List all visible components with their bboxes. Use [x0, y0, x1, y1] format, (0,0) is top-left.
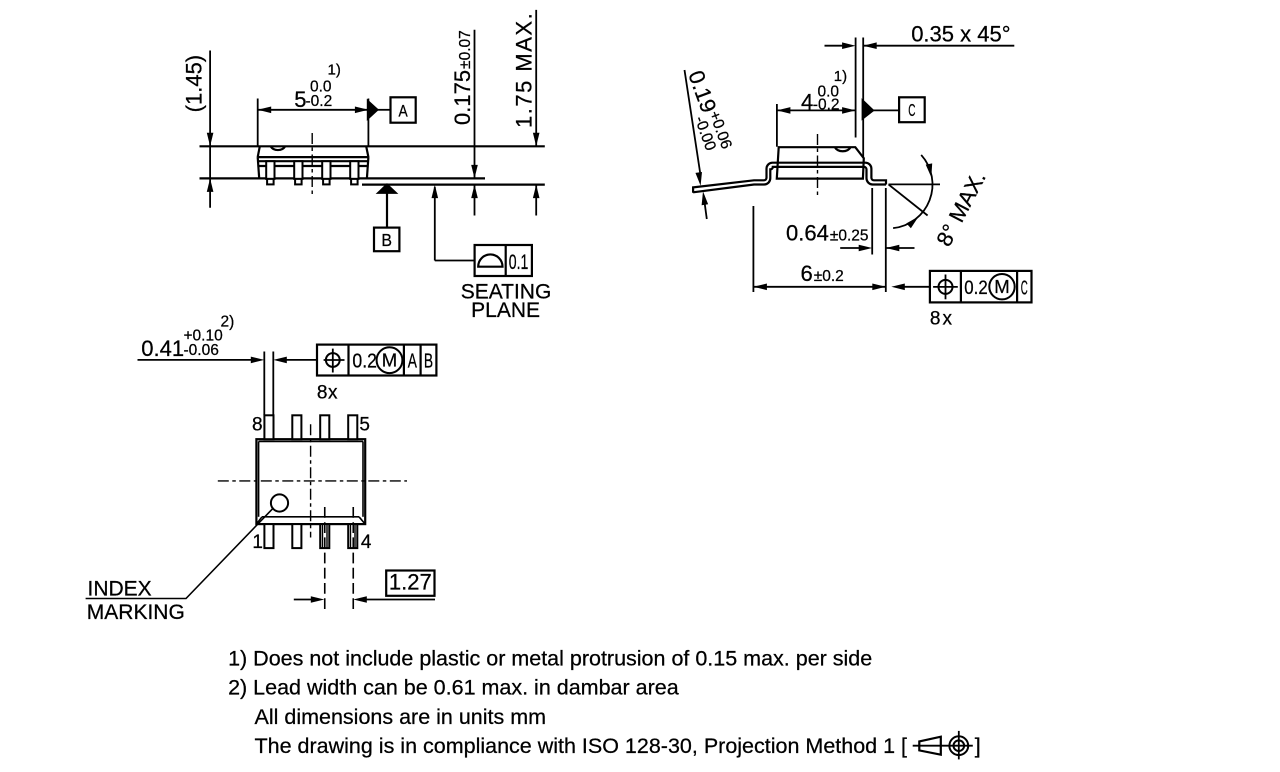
svg-text:1: 1	[252, 532, 263, 553]
svg-text:0.41: 0.41	[141, 336, 184, 361]
svg-text:The drawing is in compliance w: The drawing is in compliance with ISO 12…	[255, 734, 908, 758]
svg-text:MARKING: MARKING	[87, 601, 185, 624]
svg-text:M: M	[382, 350, 397, 371]
svg-text:(1.45): (1.45)	[181, 55, 206, 112]
svg-text:M: M	[994, 276, 1009, 297]
svg-text:4: 4	[801, 90, 813, 115]
svg-text:0.2: 0.2	[352, 350, 377, 372]
svg-text:All dimensions are in units mm: All dimensions are in units mm	[255, 705, 547, 729]
svg-text:0.2: 0.2	[964, 277, 987, 299]
svg-text:A: A	[408, 349, 417, 372]
svg-text:0.35 x 45°: 0.35 x 45°	[911, 21, 1010, 46]
svg-text:1.27: 1.27	[389, 569, 432, 594]
svg-text:8x: 8x	[930, 309, 954, 330]
svg-text:1.75 MAX.: 1.75 MAX.	[512, 12, 537, 128]
svg-text:8x: 8x	[317, 383, 338, 404]
svg-text:-0.2: -0.2	[813, 97, 840, 114]
svg-text:C: C	[1021, 278, 1028, 300]
svg-text:B: B	[381, 230, 392, 250]
svg-text:0.1: 0.1	[509, 251, 529, 274]
svg-text:INDEX: INDEX	[88, 577, 152, 600]
svg-text:5: 5	[359, 414, 370, 435]
svg-text:1): 1)	[328, 62, 341, 79]
svg-text:C: C	[908, 100, 915, 120]
svg-text:2): 2)	[221, 314, 235, 331]
svg-text:]: ]	[975, 734, 981, 758]
svg-text:B: B	[424, 349, 433, 372]
svg-text:4: 4	[361, 532, 372, 553]
svg-text:A: A	[399, 101, 409, 120]
svg-text:PLANE: PLANE	[471, 299, 540, 322]
svg-text:1): 1)	[834, 68, 847, 85]
svg-text:1) Does not include plastic or: 1) Does not include plastic or metal pro…	[228, 647, 872, 671]
svg-text:8: 8	[252, 414, 263, 435]
svg-text:-0.06: -0.06	[184, 342, 219, 359]
svg-text:-0.2: -0.2	[306, 93, 333, 110]
svg-text:2) Lead width can be 0.61 max.: 2) Lead width can be 0.61 max. in dambar…	[228, 676, 679, 700]
